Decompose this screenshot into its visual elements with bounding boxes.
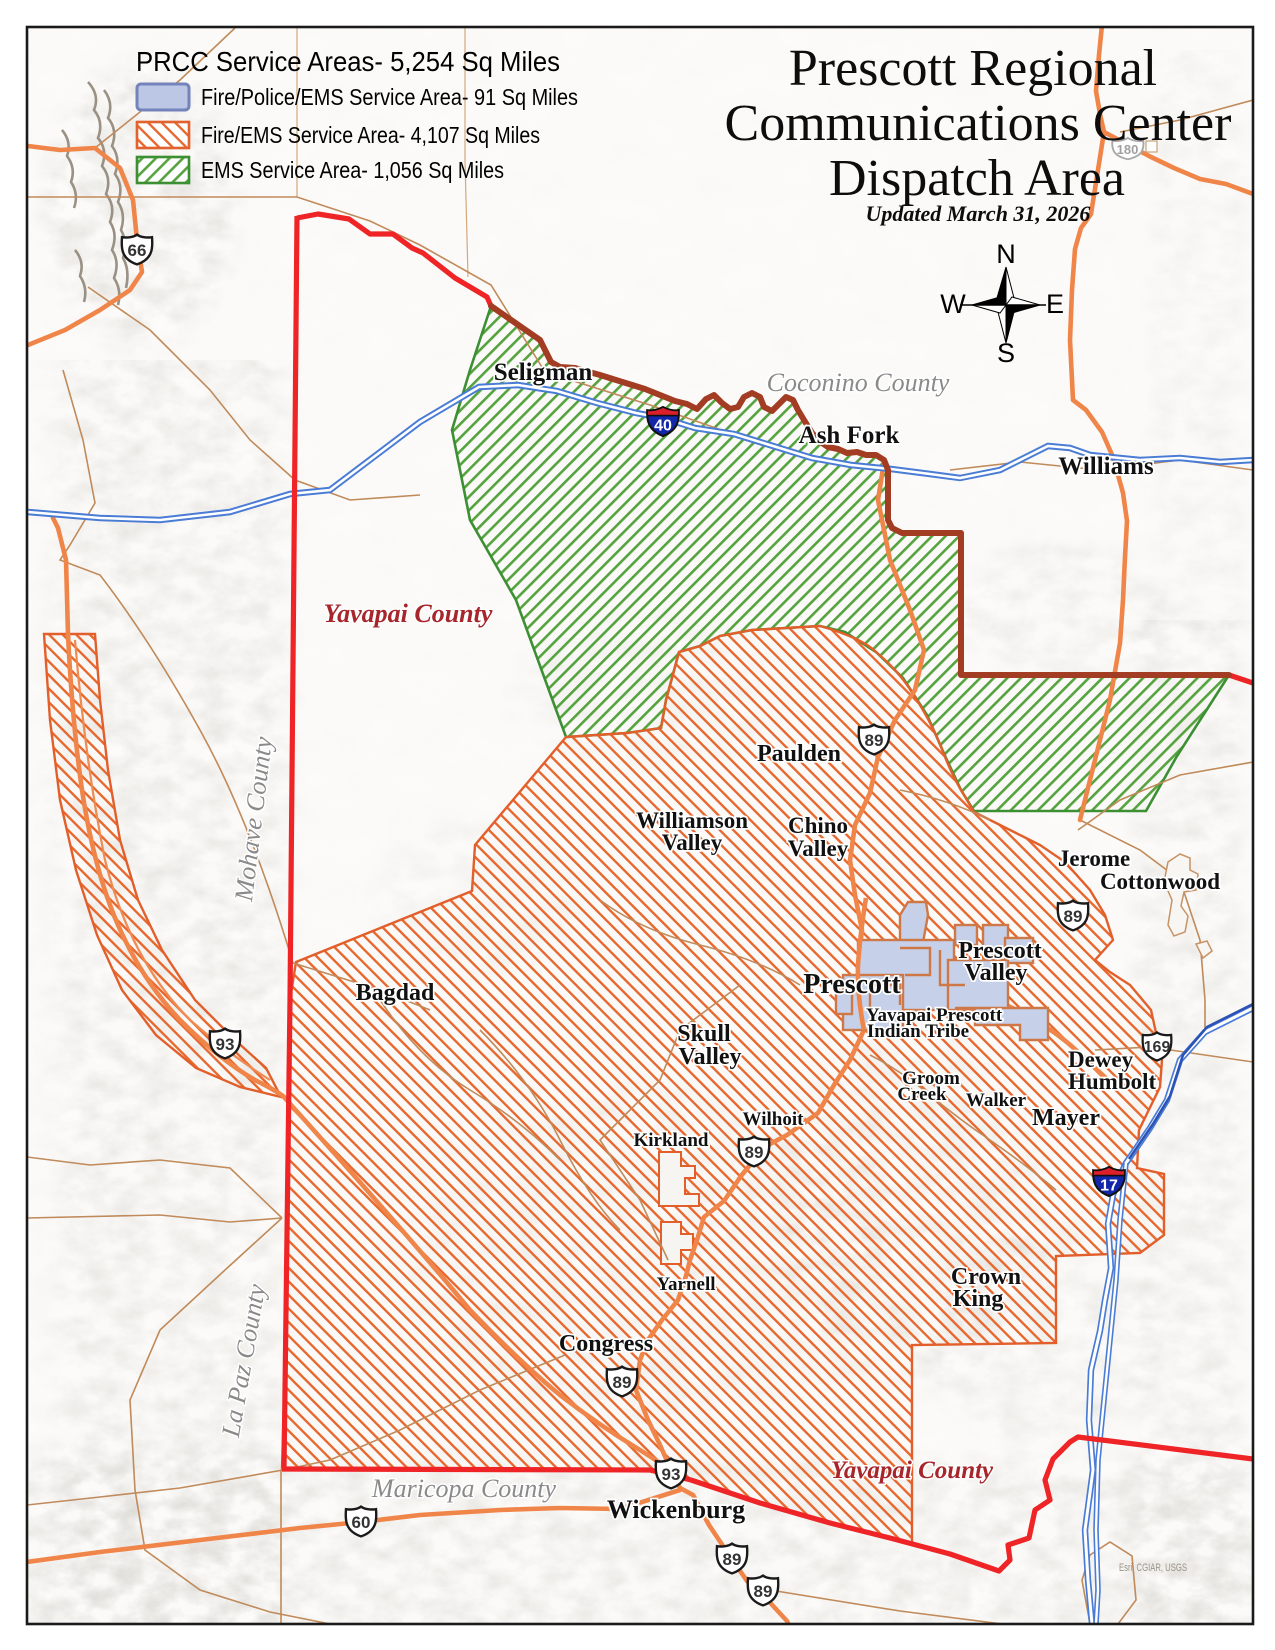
svg-text:PRCC Service Areas- 5,254 Sq M: PRCC Service Areas- 5,254 Sq Miles	[136, 46, 560, 77]
svg-text:Valley: Valley	[788, 836, 849, 861]
svg-text:169: 169	[1144, 1039, 1171, 1056]
svg-text:W: W	[940, 289, 966, 319]
svg-text:Ash Fork: Ash Fork	[799, 422, 900, 449]
svg-text:89: 89	[754, 1582, 773, 1601]
svg-text:Wickenburg: Wickenburg	[607, 1495, 745, 1524]
svg-text:Maricopa County: Maricopa County	[371, 1474, 557, 1503]
svg-text:Fire/Police/EMS Service Area-: Fire/Police/EMS Service Area- 91 Sq Mile…	[201, 84, 578, 110]
svg-text:Yavapai County: Yavapai County	[831, 1457, 994, 1484]
svg-text:Valley: Valley	[678, 1044, 741, 1070]
svg-text:N: N	[996, 239, 1016, 269]
svg-text:Yavapai County: Yavapai County	[324, 599, 493, 628]
svg-text:Dispatch Area: Dispatch Area	[829, 150, 1125, 207]
svg-text:66: 66	[128, 241, 147, 260]
svg-text:Paulden: Paulden	[757, 741, 841, 767]
svg-text:89: 89	[1064, 907, 1083, 926]
svg-text:Mayer: Mayer	[1032, 1105, 1100, 1131]
svg-text:60: 60	[352, 1513, 371, 1532]
svg-text:Chino: Chino	[788, 813, 848, 838]
svg-text:17: 17	[1100, 1178, 1118, 1195]
svg-text:89: 89	[613, 1373, 632, 1392]
svg-text:Kirkland: Kirkland	[634, 1130, 709, 1151]
svg-text:Wilhoit: Wilhoit	[743, 1109, 805, 1130]
svg-text:Jerome: Jerome	[1058, 846, 1130, 871]
svg-text:93: 93	[662, 1465, 681, 1484]
svg-text:40: 40	[654, 418, 672, 435]
svg-text:93: 93	[216, 1035, 235, 1054]
svg-text:Coconino County: Coconino County	[767, 368, 950, 397]
svg-text:Cottonwood: Cottonwood	[1100, 869, 1220, 894]
svg-text:89: 89	[865, 731, 884, 750]
svg-text:Valley: Valley	[662, 830, 723, 855]
svg-text:S: S	[997, 338, 1015, 368]
svg-text:Indian Tribe: Indian Tribe	[867, 1021, 969, 1042]
svg-text:Esri, CGIAR, USGS: Esri, CGIAR, USGS	[1119, 1562, 1187, 1574]
svg-text:King: King	[953, 1286, 1004, 1312]
svg-text:Creek: Creek	[897, 1084, 947, 1105]
svg-text:Walker: Walker	[966, 1090, 1027, 1111]
svg-text:E: E	[1046, 289, 1064, 319]
svg-text:Updated March 31, 2026: Updated March 31, 2026	[866, 201, 1091, 226]
svg-text:89: 89	[723, 1550, 742, 1569]
svg-text:EMS Service Area- 1,056 Sq Mil: EMS Service Area- 1,056 Sq Miles	[201, 157, 504, 183]
svg-text:89: 89	[745, 1143, 764, 1162]
svg-text:Congress: Congress	[559, 1331, 653, 1357]
svg-text:Prescott Regional: Prescott Regional	[789, 40, 1157, 97]
svg-text:Humbolt: Humbolt	[1068, 1069, 1157, 1094]
svg-text:Williams: Williams	[1058, 453, 1154, 480]
svg-text:Valley: Valley	[964, 960, 1027, 986]
svg-text:Yarnell: Yarnell	[656, 1274, 715, 1295]
svg-text:Seligman: Seligman	[494, 359, 593, 386]
svg-text:Bagdad: Bagdad	[356, 980, 435, 1006]
svg-text:Communications Center: Communications Center	[725, 95, 1232, 152]
svg-text:Prescott: Prescott	[803, 969, 901, 1000]
svg-text:Fire/EMS Service Area- 4,107 S: Fire/EMS Service Area- 4,107 Sq Miles	[201, 122, 540, 148]
